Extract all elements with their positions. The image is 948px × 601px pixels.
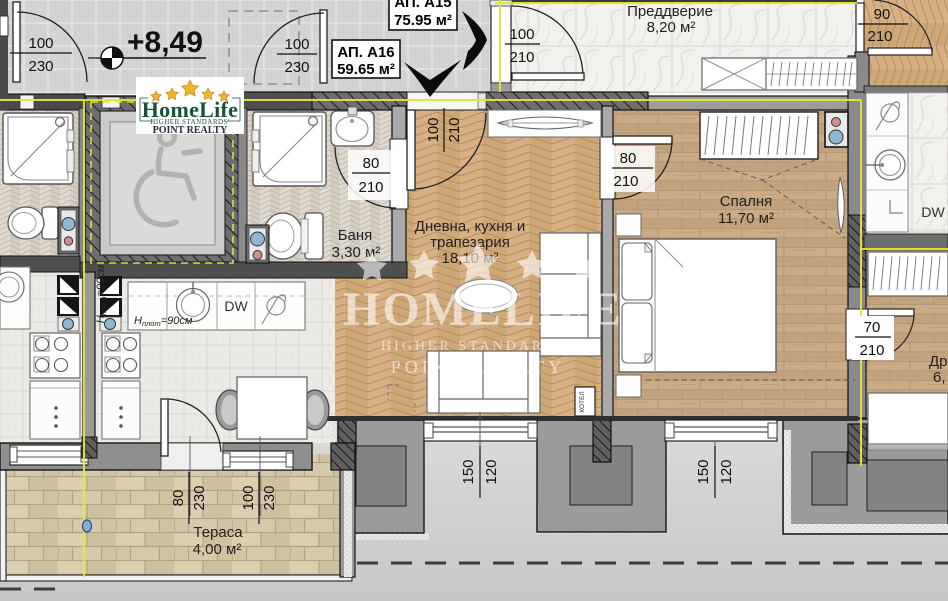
svg-text:230: 230 [261,485,278,510]
svg-text:POINT REALTY: POINT REALTY [153,125,229,136]
svg-text:210: 210 [446,117,463,142]
svg-text:210: 210 [867,28,892,45]
svg-text:8,20 м²: 8,20 м² [647,19,696,36]
svg-text:11,70 м²: 11,70 м² [718,210,774,227]
svg-text:75.95 м²: 75.95 м² [394,12,452,29]
svg-text:230: 230 [191,485,208,510]
svg-text:70: 70 [864,319,881,336]
svg-text:120: 120 [718,459,735,484]
svg-text:DW: DW [224,298,248,314]
svg-text:120: 120 [483,459,500,484]
svg-text:100: 100 [425,117,442,142]
svg-text:АП. А15: АП. А15 [394,0,451,11]
svg-text:80: 80 [170,490,187,507]
svg-text:90: 90 [874,6,891,23]
svg-text:100: 100 [509,26,534,43]
svg-text:АП. А16: АП. А16 [337,44,394,61]
svg-text:HOMELIFE: HOMELIFE [343,283,623,336]
svg-text:230: 230 [284,59,309,76]
svg-text:HIGHER STANDARDS™: HIGHER STANDARDS™ [381,339,585,354]
svg-text:80: 80 [620,150,637,167]
svg-text:80: 80 [363,155,380,172]
svg-text:6,: 6, [933,369,946,386]
svg-text:210: 210 [509,49,534,66]
svg-text:210: 210 [859,342,884,359]
svg-text:Тераса: Тераса [193,524,243,541]
svg-text:+8,49: +8,49 [127,26,203,59]
svg-text:Преддверие: Преддверие [627,3,713,20]
svg-text:Др: Др [929,353,948,370]
svg-text:POINT REALTY: POINT REALTY [391,357,566,377]
svg-text:59.65 м²: 59.65 м² [337,61,395,78]
svg-text:Баня: Баня [338,227,373,244]
svg-text:100: 100 [28,35,53,52]
svg-text:трапезария: трапезария [430,234,510,251]
svg-text:100: 100 [240,485,257,510]
svg-text:210: 210 [613,173,638,190]
svg-text:100: 100 [284,36,309,53]
svg-text:Спалня: Спалня [720,193,772,210]
svg-text:150: 150 [460,459,477,484]
svg-text:Дневна, кухня и: Дневна, кухня и [415,218,525,235]
svg-text:КОТЕЛ: КОТЕЛ [579,391,586,412]
svg-text:150: 150 [695,459,712,484]
svg-text:4,00 м²: 4,00 м² [193,541,242,558]
svg-text:210: 210 [358,179,383,196]
svg-text:DW: DW [921,204,945,220]
svg-text:230: 230 [28,58,53,75]
